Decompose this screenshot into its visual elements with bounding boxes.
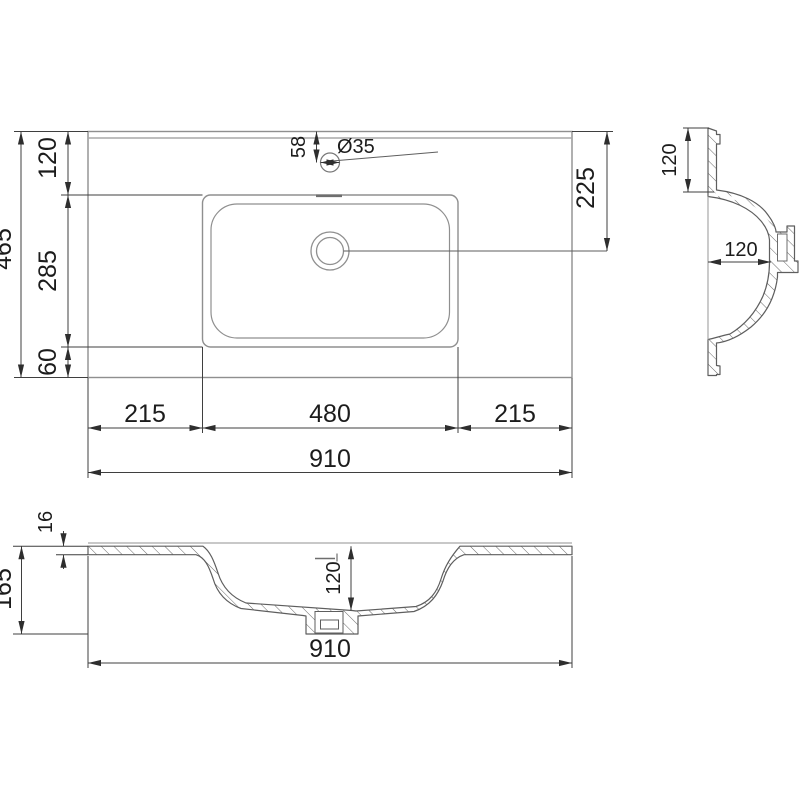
technical-drawing-page: 465 120 285 60 58 Ø35 225 215 480 215 91… — [0, 0, 800, 800]
dim-faucet-offset: 58 — [288, 136, 310, 158]
dim-side-back-shelf: 120 — [659, 143, 681, 176]
dim-faucet-diameter: Ø35 — [337, 136, 375, 158]
drain-inner-circle — [317, 238, 344, 265]
dim-depth-back: 120 — [34, 137, 62, 179]
dim-drain-from-back: 225 — [572, 167, 600, 209]
dim-height-total: 165 — [0, 568, 17, 610]
basin-outer-outline — [203, 195, 459, 347]
basin-inner-outline — [211, 204, 450, 338]
countertop-outline — [88, 132, 572, 378]
dim-side-bowl-depth: 120 — [724, 239, 757, 261]
dim-width-total-plan: 910 — [309, 445, 351, 473]
plan-view — [88, 132, 607, 378]
side-overflow-channel-mouth — [778, 234, 788, 261]
dim-width-total-front: 910 — [309, 635, 351, 663]
dim-front-bowl-depth: 120 — [323, 561, 345, 594]
dim-width-basin: 480 — [309, 400, 351, 428]
dim-depth-total: 465 — [0, 228, 17, 270]
dim-width-left: 215 — [124, 400, 166, 428]
dim-depth-front: 60 — [34, 348, 62, 376]
dim-top-thickness: 16 — [35, 511, 57, 533]
dim-width-right: 215 — [494, 400, 536, 428]
dim-depth-basin: 285 — [34, 250, 62, 292]
washbasin-technical-drawing: 465 120 285 60 58 Ø35 225 215 480 215 91… — [0, 0, 800, 800]
